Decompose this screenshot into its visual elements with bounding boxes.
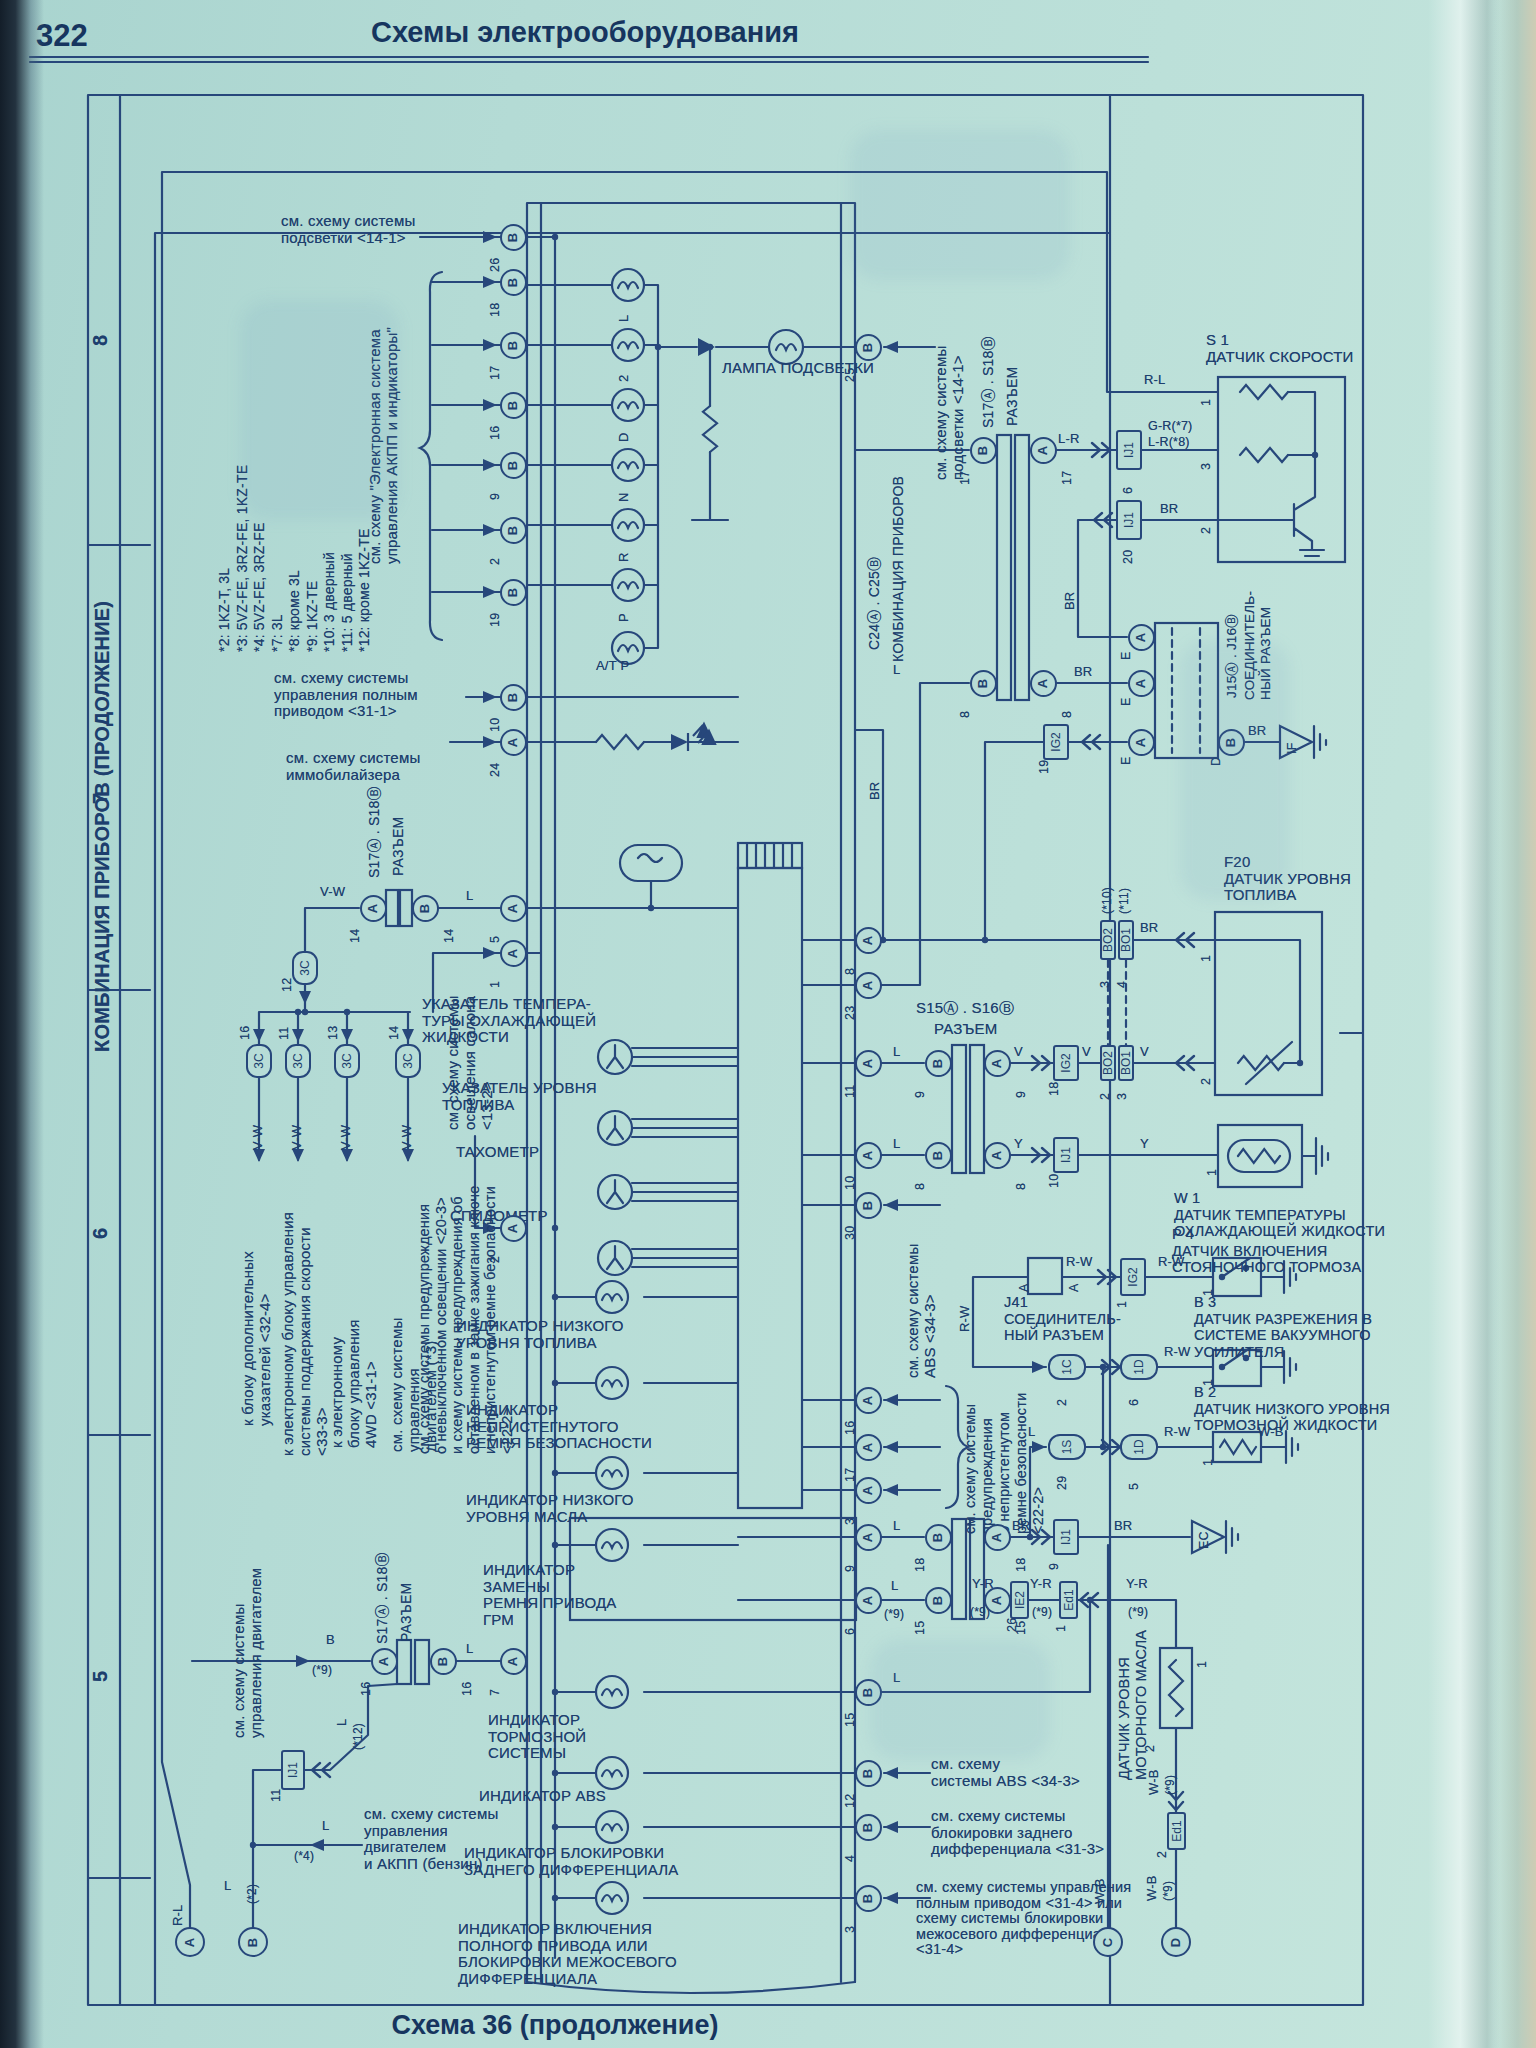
pin-number: 3 <box>842 1926 859 1933</box>
label-sensor_pin_labels-f20-0: 1 <box>1198 955 1215 962</box>
label-wires-yr: Y-R <box>1030 1576 1052 1593</box>
pin-number: 18 <box>912 1558 929 1572</box>
pin-number: 25 <box>842 368 859 382</box>
pin-letter: B <box>930 1532 945 1541</box>
label-connectors-j41: J41 СОЕДИНИТЕЛЬ- НЫЙ РАЗЪЕМ <box>1004 1294 1121 1344</box>
label-sensor_pin_labels-oil-1: 2 <box>1142 1745 1159 1752</box>
block-code: 1S <box>1060 1440 1074 1455</box>
pin-pins-s15-3: A <box>984 1142 1011 1169</box>
label-wires-l: L <box>893 1518 900 1535</box>
label-refs-abs_mid: см. схему системы ABS <34-3> <box>904 1244 938 1378</box>
pin-number: 23 <box>842 1006 859 1020</box>
relay-block-14: BO1 <box>1118 1045 1134 1081</box>
block-code: Ed1 <box>1062 1589 1076 1610</box>
pin-number: 7 <box>487 1689 504 1696</box>
label-wires-lr8: L-R(*8) <box>1148 434 1190 451</box>
label-wires-rl: R-L <box>1144 372 1166 389</box>
label-wires-s9: (*9) <box>1032 1604 1052 1621</box>
label-wires-s2: (*2) <box>244 1884 261 1904</box>
label-wires-rw: R-W <box>1164 1344 1191 1361</box>
pin-pins-s17c-1: B <box>430 1648 457 1675</box>
pin-letter: B <box>505 525 520 534</box>
block-code: BO2 <box>1101 1051 1115 1075</box>
relay-block-9: Ed1 <box>1167 1812 1186 1850</box>
block-pin: 6 <box>1120 487 1137 494</box>
label-grid-rows-2: 6 <box>92 1228 109 1239</box>
pin-number: 9 <box>1013 1091 1030 1098</box>
pin-number: 8 <box>1013 1183 1030 1190</box>
pin-pins-left-9: A <box>500 895 527 922</box>
relay-block-7: IE2 <box>1010 1581 1029 1619</box>
relay-block-20: 1C <box>1048 1354 1086 1380</box>
pin-letter: A <box>505 1656 520 1665</box>
label-connectors-j41_pin: A <box>1066 1283 1083 1292</box>
diagram-caption: Схема 36 (продолжение) <box>0 2010 1110 2041</box>
pin-letter: A <box>1035 678 1050 687</box>
relay-block-16: 3C <box>246 1044 272 1078</box>
label-refs-skorost: к электронному блоку управления системы … <box>279 1212 330 1456</box>
pin-pins-s17d-1: A <box>984 1524 1011 1551</box>
pin-letter: A <box>1133 632 1148 641</box>
pin-number: 24 <box>487 763 504 777</box>
block-code: IJ1 <box>286 1762 300 1778</box>
block-code: IG2 <box>1126 1267 1140 1286</box>
label-wires-s9: (*9) <box>312 1662 332 1679</box>
label-wires-b: B <box>326 1632 335 1649</box>
block-pin: 9 <box>1046 1563 1063 1570</box>
label-grid-rows-3: 5 <box>92 1671 109 1682</box>
scanned-manual-page: 322 Схемы электрооборудования 8765КОМБИН… <box>0 0 1536 2048</box>
label-wires-vw: V-W <box>250 1125 267 1150</box>
pin-pins-right-1: A <box>855 927 882 954</box>
block-pin: 6 <box>1126 1399 1143 1406</box>
block-code: 3C <box>291 1053 305 1068</box>
pin-pins-left-8: A <box>500 729 527 756</box>
pin-letter: B <box>975 678 990 687</box>
block-code: IG2 <box>1059 1053 1073 1072</box>
pin-number: 17 <box>842 1468 859 1482</box>
block-pin: 14 <box>386 1026 403 1040</box>
corner-circle-3: D <box>1161 1927 1191 1957</box>
label-wires-br: BR <box>867 782 884 800</box>
label-wires-rw: R-W <box>1066 1254 1093 1271</box>
label-sensor_pin_labels-p4: 1 <box>1200 1289 1217 1296</box>
pin-number: 17 <box>487 366 504 380</box>
block-pin: 26 <box>1004 1618 1021 1632</box>
label-wires-l: L <box>1028 1424 1035 1441</box>
label-wires-l: L <box>893 1044 900 1061</box>
label-cluster-gauges-2: ТАХОМЕТР <box>456 1144 539 1161</box>
pin-letter: A <box>860 1595 875 1604</box>
pin-pins-right-13: B <box>855 1814 882 1841</box>
corner-letter: B <box>245 1937 260 1946</box>
block-code: IG2 <box>1049 732 1063 751</box>
pin-number: 9 <box>842 1565 859 1572</box>
label-wires-v: V <box>1140 1044 1149 1061</box>
pin-pins-s17c-0: A <box>371 1648 398 1675</box>
pin-pins-s17a-3: A <box>1030 670 1057 697</box>
relay-block-4: IJ1 <box>1053 1137 1079 1173</box>
pin-pins-left-1: B <box>500 269 527 296</box>
label-cluster-gauges-3: СПИДОМЕТР <box>450 1208 548 1225</box>
pin-pins-left-6: B <box>500 579 527 606</box>
label-wires-rl: R-L <box>170 1904 187 1926</box>
pin-number: 15 <box>842 1713 859 1727</box>
pin-pins-left-3: B <box>500 392 527 419</box>
label-cluster-gears-0: L <box>616 315 633 322</box>
pin-pins-right-2: A <box>855 972 882 999</box>
label-sensors-b2: B 2 ДАТЧИК НИЗКОГО УРОВНЯ ТОРМОЗНОЙ ЖИДК… <box>1194 1384 1390 1434</box>
pin-letter: B <box>505 460 520 469</box>
label-cluster-gears-5: P <box>616 613 633 622</box>
label-sensors-s1: S 1 ДАТЧИК СКОРОСТИ <box>1206 332 1354 365</box>
label-wires-v: V <box>1014 1044 1023 1061</box>
label-connectors-s15s16: S15Ⓐ . S16Ⓑ <box>916 1000 1014 1017</box>
pin-number: 16 <box>459 1682 476 1696</box>
label-wires-y: Y <box>1140 1136 1149 1153</box>
pin-number: 5 <box>487 936 504 943</box>
pin-letter: A <box>989 1595 1004 1604</box>
pin-pins-s15-2: B <box>925 1142 952 1169</box>
label-connectors-razem: РАЗЪЕМ <box>398 1583 415 1642</box>
pin-letter: A <box>860 1395 875 1404</box>
label-wires-s9: (*9) <box>1128 1604 1148 1621</box>
relay-block-10: IJ1 <box>281 1750 305 1790</box>
pin-number: 8 <box>842 968 859 975</box>
block-pin: 11 <box>276 1027 293 1040</box>
block-code: 3C <box>401 1053 415 1068</box>
pin-letter: A <box>860 980 875 989</box>
pin-number: 9 <box>487 493 504 500</box>
corner-circle-2: C <box>1093 1927 1123 1957</box>
block-pin: 1 <box>1053 1625 1070 1632</box>
pin-pins-left-4: B <box>500 452 527 479</box>
label-wires-s4: (*4) <box>294 1848 314 1865</box>
label-wires-s9: (*9) <box>1160 1881 1177 1901</box>
label-connectors-comb: КОМБИНАЦИЯ ПРИБОРОВ <box>890 476 907 662</box>
label-cluster-gauges-1: УКАЗАТЕЛЬ УРОВНЯ ТОПЛИВА <box>442 1080 597 1113</box>
relay-block-19: 3C <box>395 1044 421 1078</box>
relay-block-0: IJ1 <box>1116 430 1142 470</box>
label-cluster-indicators-2: ИНДИКАТОР НИЗКОГО УРОВНЯ МАСЛА <box>466 1492 634 1525</box>
block-pin: 4 <box>1114 981 1131 988</box>
pin-letter: B <box>930 1595 945 1604</box>
label-wires-br: BR <box>1160 501 1178 518</box>
pin-pins-left-10: A <box>500 940 527 967</box>
block-pin: 18 <box>1046 1082 1063 1096</box>
pin-letter: B <box>930 1150 945 1159</box>
pin-pins-right-4: A <box>855 1142 882 1169</box>
pin-pins-s17a-0: B <box>970 437 997 464</box>
label-wires-s9: (*9) <box>1162 1775 1179 1795</box>
label-wires-wb: W-B <box>1146 1769 1163 1795</box>
label-wires-br: BR <box>1140 920 1158 937</box>
pin-number: 17 <box>1059 471 1076 485</box>
block-pin: 5 <box>1126 1483 1143 1490</box>
label-cluster-gears-1: 2 <box>616 375 633 382</box>
label-wires-wb: W-B <box>1258 1424 1284 1441</box>
pin-pins-s17d-3: A <box>984 1587 1011 1614</box>
pin-letter: A <box>989 1150 1004 1159</box>
pin-number: 14 <box>347 929 364 943</box>
pin-pins-right-8: A <box>855 1477 882 1504</box>
pin-pins-j15-0: A <box>1128 624 1155 651</box>
label-sensor_pin_labels-e: E <box>1118 697 1135 706</box>
bleedthrough-ghost <box>870 1640 1050 1760</box>
pin-letter: B <box>435 1656 450 1665</box>
label-wires-wb: W-B <box>1144 1875 1161 1901</box>
pin-letter: A <box>365 903 380 912</box>
pin-letter: A <box>505 737 520 746</box>
label-sensor_pin_labels-b3: 1 <box>1200 1379 1217 1386</box>
pin-letter: B <box>417 903 432 912</box>
pin-pins-s17a-1: A <box>1030 437 1057 464</box>
pin-letter: B <box>860 342 875 351</box>
pin-letter: A <box>989 1058 1004 1067</box>
pin-letter: B <box>930 1058 945 1067</box>
block-code: 3C <box>340 1053 354 1068</box>
label-sensor_pin_labels-s1-1: 3 <box>1198 463 1215 470</box>
pin-number: 2 <box>487 558 504 565</box>
pin-pins-left-0: B <box>500 224 527 251</box>
relay-block-22: 1S <box>1048 1434 1086 1460</box>
label-refs-diff_bot: см. схему системы блокировки заднего диф… <box>931 1808 1104 1858</box>
label-wires-y: Y <box>1014 1136 1023 1153</box>
pin-number: 16 <box>487 426 504 440</box>
corner-letter: A <box>182 1937 197 1946</box>
pin-letter: A <box>1133 678 1148 687</box>
pin-pins-s17b-1: B <box>412 895 439 922</box>
label-wires-vw: V-W <box>399 1125 416 1150</box>
pin-number: 4 <box>842 1855 859 1862</box>
pin-letter: A <box>505 1223 520 1232</box>
pin-letter: A <box>1133 737 1148 746</box>
book-spine-shadow <box>0 0 44 2048</box>
relay-block-5: IG2 <box>1120 1258 1146 1296</box>
label-cluster-gears-4: R <box>616 552 633 562</box>
pin-pins-s17a-2: B <box>970 670 997 697</box>
label-wires-br: BR <box>1062 592 1079 610</box>
pin-number: 18 <box>1013 1558 1030 1572</box>
label-wires-l: L <box>224 1878 231 1895</box>
block-code: BO1 <box>1119 928 1133 952</box>
label-connectors-razem: РАЗЪЕМ <box>390 817 407 876</box>
block-code: 3C <box>298 960 312 975</box>
pin-letter: A <box>860 935 875 944</box>
pin-number: 17 <box>957 471 974 485</box>
pin-pins-right-9: A <box>855 1524 882 1551</box>
pin-pins-left-12: A <box>500 1648 527 1675</box>
pin-pins-left-5: B <box>500 517 527 544</box>
label-wires-br: BR <box>1074 664 1092 681</box>
pin-pins-right-10: A <box>855 1587 882 1614</box>
block-pin: 2 <box>1097 1093 1114 1100</box>
label-refs-dvig_bl: см. схему системы управления двигателем <box>230 1568 264 1738</box>
pin-letter: B <box>860 1893 875 1902</box>
label-cluster-gears-3: N <box>616 492 633 502</box>
label-wires-vw: V-W <box>338 1125 355 1150</box>
pin-number: 3 <box>842 1518 859 1525</box>
pin-pins-s17d-2: B <box>925 1587 952 1614</box>
page-edge <box>1494 0 1536 2048</box>
pin-letter: B <box>505 277 520 286</box>
label-wires-wb: W-B <box>1092 1878 1109 1904</box>
block-pin: 12 <box>279 978 296 992</box>
bleedthrough-ghost <box>1180 640 1290 900</box>
relay-block-6: IJ1 <box>1053 1519 1079 1555</box>
pin-number: 11 <box>842 1085 859 1098</box>
relay-block-13: BO2 <box>1100 1045 1116 1081</box>
block-code: IJ1 <box>1122 512 1136 528</box>
label-sensor_pin_labels-oil-0: 1 <box>1194 1661 1211 1668</box>
label-grid-rows-0: 8 <box>92 335 109 346</box>
corner-circle-0: A <box>175 1927 205 1957</box>
block-pin: 1 <box>1114 1301 1131 1308</box>
label-refs-immob: см. схему системы иммобилайзера <box>286 750 420 783</box>
relay-block-2: IG2 <box>1043 724 1069 760</box>
pin-letter: B <box>505 400 520 409</box>
pin-pins-right-5: B <box>855 1192 882 1219</box>
pin-number: 10 <box>487 718 504 732</box>
pin-letter: B <box>505 340 520 349</box>
label-refs-podsvetka_r: см. схему системы подсветки <14-1> <box>932 346 966 480</box>
block-pin: 10 <box>1046 1174 1063 1188</box>
label-sensor_pin_labels-w1: 1 <box>1204 1169 1221 1176</box>
corner-circle-1: B <box>238 1927 268 1957</box>
label-refs-abs_bot: см. схему системы ABS <34-3> <box>931 1756 1080 1789</box>
block-code: IJ1 <box>1122 442 1136 458</box>
label-refs-dop_ukaz: к блоку дополнительных указателей <32-4> <box>239 1251 273 1426</box>
label-cluster-gears-2: D <box>616 432 633 442</box>
label-wires-v: V <box>1082 1044 1091 1061</box>
label-wires-br: BR <box>1012 1518 1030 1535</box>
corner-letter: D <box>1168 1937 1183 1946</box>
relay-block-3: IG2 <box>1053 1045 1079 1081</box>
pin-pins-right-12: B <box>855 1760 882 1787</box>
label-grounds-ec: EC <box>1196 1531 1213 1549</box>
block-code: 1C <box>1060 1359 1074 1374</box>
label-wires-l: L <box>893 1136 900 1153</box>
label-wires-s10: (*10) <box>1099 887 1116 914</box>
pin-pins-s17d-0: B <box>925 1524 952 1551</box>
pin-letter: A <box>376 1656 391 1665</box>
block-code: Ed1 <box>1170 1820 1184 1841</box>
pin-pins-right-6: A <box>855 1387 882 1414</box>
label-cluster-atp: A/T P <box>596 658 629 675</box>
pin-number: 12 <box>842 1794 859 1808</box>
label-wires-br: BR <box>1114 1518 1132 1535</box>
relay-block-15: 3C <box>292 951 318 985</box>
label-wires-yr: Y-R <box>1126 1576 1148 1593</box>
block-pin: 11 <box>268 1789 285 1802</box>
label-connectors-j41_pin: A <box>1016 1283 1033 1292</box>
pin-letter: A <box>505 903 520 912</box>
label-refs-belt: см. схему системы предупреждения о непри… <box>962 1393 1047 1534</box>
pin-pins-left-11: A <box>500 1215 527 1242</box>
block-pin: 20 <box>1120 550 1137 564</box>
label-cluster-gauges-0: УКАЗАТЕЛЬ ТЕМПЕРА- ТУРЫ ОХЛАЖДАЮЩЕЙ ЖИДК… <box>422 996 596 1046</box>
pin-letter: A <box>860 1485 875 1494</box>
pin-number: 18 <box>487 303 504 317</box>
label-sensors-p4: P 4 ДАТЧИК ВКЛЮЧЕНИЯ СТОЯНОЧНОГО ТОРМОЗА <box>1172 1226 1361 1276</box>
label-sensor_pin_labels-s1-0: 1 <box>1198 399 1215 406</box>
pin-number: 30 <box>842 1226 859 1240</box>
pin-number: 15 <box>912 1621 929 1635</box>
block-code: 3C <box>252 1053 266 1068</box>
label-wires-l: L <box>322 1818 329 1835</box>
block-pin: 16 <box>237 1026 254 1040</box>
label-wires-l: L <box>466 888 473 905</box>
label-sensors-b3: B 3 ДАТЧИК РАЗРЕЖЕНИЯ В СИСТЕМЕ ВАКУУМНО… <box>1194 1294 1372 1360</box>
block-code: IJ1 <box>1059 1147 1073 1163</box>
label-wires-l: L <box>893 662 900 679</box>
label-wires-lr: L-R <box>1058 431 1080 448</box>
label-connectors-c24c25: C24Ⓐ . C25Ⓑ <box>866 557 883 650</box>
label-refs-dvig3: см. схему системы управления двигателем … <box>388 1318 439 1452</box>
label-connectors-razem: РАЗЪЕМ <box>934 1021 997 1038</box>
pin-letter: B <box>505 587 520 596</box>
pin-pins-right-0: B <box>855 334 882 361</box>
relay-block-8: Ed1 <box>1059 1581 1078 1619</box>
label-cluster-indicators-4: ИНДИКАТОР ТОРМОЗНОЙ СИСТЕМЫ <box>488 1712 586 1762</box>
pin-pins-left-7: B <box>500 684 527 711</box>
block-code: IE2 <box>1013 1591 1027 1609</box>
block-pin: 29 <box>1054 1476 1071 1490</box>
pin-pins-left-2: B <box>500 332 527 359</box>
pin-number: 2 <box>487 1256 504 1263</box>
label-wires-gr7: G-R(*7) <box>1148 418 1192 435</box>
pin-number: 19 <box>487 613 504 627</box>
label-connectors-razem: РАЗЪЕМ <box>1004 367 1021 426</box>
pin-pins-right-3: A <box>855 1050 882 1077</box>
pin-number: 16 <box>842 1421 859 1435</box>
label-sensor_pin_labels-s1-2: 2 <box>1198 527 1215 534</box>
block-code: IJ1 <box>1059 1529 1073 1545</box>
pin-number: 8 <box>957 711 974 718</box>
pin-letter: A <box>860 1058 875 1067</box>
relay-block-18: 3C <box>334 1044 360 1078</box>
pin-pins-s17b-0: A <box>360 895 387 922</box>
pin-pins-right-7: A <box>855 1434 882 1461</box>
pin-letter: B <box>505 692 520 701</box>
pin-pins-right-14: B <box>855 1885 882 1912</box>
label-wires-vw: V-W <box>289 1125 306 1150</box>
label-cluster-indicators-7: ИНДИКАТОР ВКЛЮЧЕНИЯ ПОЛНОГО ПРИВОДА ИЛИ … <box>458 1921 677 1987</box>
label-wires-l: L <box>334 1719 351 1726</box>
pin-number: 8 <box>1059 711 1076 718</box>
relay-block-21: 1D <box>1120 1354 1158 1380</box>
label-sensor_pin_labels-b2: 1 <box>1200 1459 1217 1466</box>
pin-letter: A <box>505 948 520 957</box>
label-connectors-s17s18: S17Ⓐ . S18Ⓑ <box>980 336 997 428</box>
pin-letter: B <box>975 445 990 454</box>
pin-pins-s15-1: A <box>984 1050 1011 1077</box>
page-crease <box>1428 0 1500 2048</box>
block-pin: 19 <box>1036 760 1053 774</box>
relay-block-23: 1D <box>1120 1434 1158 1460</box>
pin-letter: A <box>860 1150 875 1159</box>
label-refs-podsvetka_tl: см. схему системы подсветки <14-1> <box>281 213 415 246</box>
label-wires-s11: (*11) <box>1116 888 1133 914</box>
pin-number: 1 <box>487 981 504 988</box>
label-cluster-indicators-1: ИНДИКАТОР НЕПРИСТЕГНУТОГО РЕМНЯ БЕЗОПАСН… <box>466 1402 652 1452</box>
pin-number: 16 <box>358 1682 375 1696</box>
pin-number: 10 <box>842 1176 859 1190</box>
bleedthrough-ghost <box>240 300 400 520</box>
label-wires-s9: (*9) <box>884 1606 904 1623</box>
pin-pins-s15-0: B <box>925 1050 952 1077</box>
bleedthrough-ghost <box>850 130 1070 280</box>
